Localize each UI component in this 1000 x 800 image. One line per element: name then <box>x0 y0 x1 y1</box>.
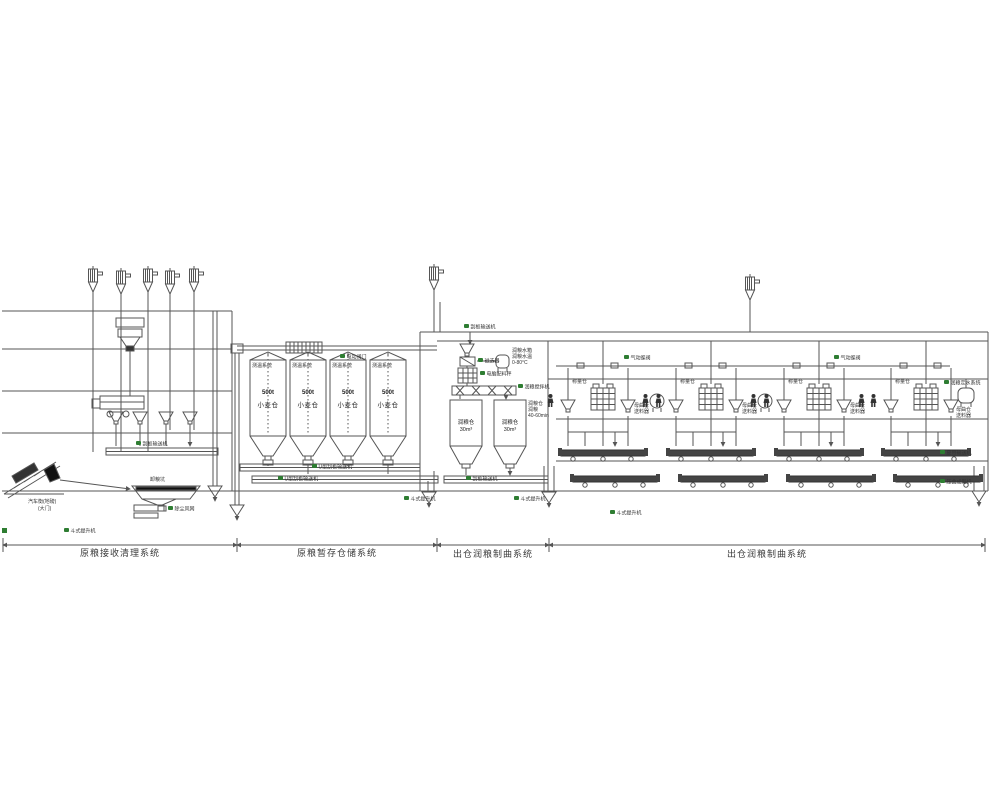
water-temp-range: 0-80°C <box>512 361 528 367</box>
feeder-label: 送料器 <box>850 410 865 416</box>
weigh-bin-label: 称量仓 <box>788 380 803 386</box>
moistening-bin-volume: 30m³ <box>452 427 480 433</box>
feeder-label: 送料器 <box>956 414 971 420</box>
weigh-bin-label: 称量仓 <box>680 380 695 386</box>
pneumatic-valve-label: 气动蝶阀 <box>624 355 651 362</box>
silo-name: 小麦仓 <box>294 399 322 409</box>
weigh-bin-label: 称量仓 <box>572 380 587 386</box>
water-metering-system-label: 润粮定水系统 <box>944 380 981 387</box>
silo-temp-system-label: 测温系统 <box>292 364 312 370</box>
moistening-bin-name: 润粮仓 <box>496 418 524 426</box>
floor-lines <box>2 311 988 491</box>
section-label-receiving: 原粮接收清理系统 <box>30 546 210 559</box>
silo-name: 小麦仓 <box>374 399 402 409</box>
silo-temp-system-label: 测温系统 <box>372 364 392 370</box>
weigh-bin-label: 称量仓 <box>895 380 910 386</box>
section-label-storage: 原粮暂存仓储系统 <box>247 546 427 559</box>
receiving-cleaning-section <box>2 266 222 533</box>
silo-capacity: 500t <box>334 390 362 396</box>
section-label-moistening: 出仓润粮制曲系统 <box>443 547 543 560</box>
bucket-elevator-label: 斗式提升机 <box>514 496 546 503</box>
batching-scale-label: 电脑配料秤 <box>480 371 512 378</box>
moistening-bin-volume: 30m³ <box>496 427 524 433</box>
section-label-koji: 出仓润粮制曲系统 <box>677 547 857 560</box>
silo-temp-system-label: 测温系统 <box>332 364 352 370</box>
soak-time-label: 40-60min <box>528 414 549 420</box>
gate-label: (大门) <box>38 507 51 513</box>
silo-temp-system-label: 测温系统 <box>252 364 272 370</box>
feeder-label: 送料器 <box>742 410 757 416</box>
koji-press-label: 压曲成型机 <box>940 479 972 486</box>
bucket-elevator-label: 斗式提升机 <box>64 528 96 535</box>
silo-capacity: 500t <box>294 390 322 396</box>
silo-name: 小麦仓 <box>334 399 362 409</box>
silo-capacity: 500t <box>374 390 402 396</box>
electric-valve-label: 电动阀门 <box>340 354 367 361</box>
scraper-conveyor-label: 刮板输送机 <box>466 476 498 483</box>
silo-name: 小麦仓 <box>254 399 282 409</box>
magnet-separator-label: 磁选器 <box>478 358 500 365</box>
belt-conveyor-label: 皮带输送机 <box>940 450 972 457</box>
koji-section <box>548 274 987 506</box>
unloading-pit-label: 卸粮坑 <box>150 478 165 484</box>
process-flow-page: 原粮接收清理系统 原粮暂存仓储系统 出仓润粮制曲系统 出仓润粮制曲系统 500t… <box>0 0 1000 800</box>
scraper-conveyor-label: 刮板输送机 <box>136 441 168 448</box>
truck-scale-label: 汽车衡(地磅) <box>28 500 56 506</box>
bucket-elevator-label: 斗式提升机 <box>610 510 642 517</box>
scraper-conveyor-label: 刮板输送机 <box>464 324 496 331</box>
dust-net-label: 除尘风网 <box>168 506 195 513</box>
feeder-label: 送料器 <box>634 410 649 416</box>
process-flow-diagram-linework <box>0 0 1000 800</box>
moistening-bin-name: 润粮仓 <box>452 418 480 426</box>
pneumatic-valve-label: 气动蝶阀 <box>834 355 861 362</box>
u-scraper-conveyor-label: U型刮板输送机 <box>278 476 318 483</box>
u-scraper-conveyor-label: U型刮板输送机 <box>312 464 352 471</box>
bucket-elevator-label: 斗式提升机 <box>404 496 436 503</box>
silo-capacity: 500t <box>254 390 282 396</box>
moistening-mixer-label: 润粮搅拌机 <box>518 384 550 391</box>
